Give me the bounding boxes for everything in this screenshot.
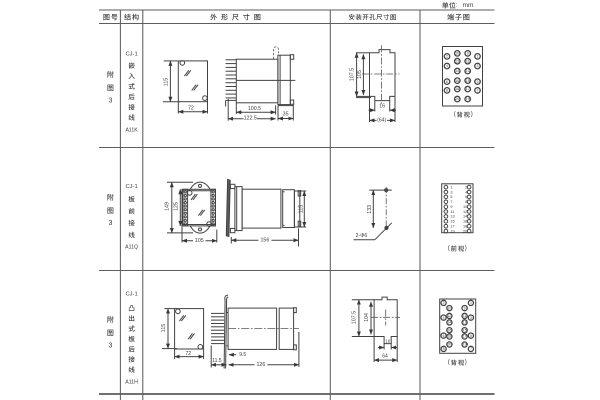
- svg-text:14: 14: [455, 69, 459, 73]
- svg-text:5: 5: [477, 80, 479, 84]
- svg-text:10: 10: [448, 306, 452, 310]
- svg-text:72: 72: [185, 351, 191, 357]
- svg-text:35: 35: [283, 112, 289, 118]
- svg-text:20: 20: [463, 229, 467, 233]
- svg-text:3: 3: [108, 220, 112, 227]
- svg-text:11.5: 11.5: [212, 358, 222, 364]
- svg-text:2: 2: [443, 301, 445, 305]
- svg-text:2: 2: [446, 55, 448, 59]
- svg-text:(: (: [448, 359, 450, 365]
- svg-text:105: 105: [195, 238, 204, 244]
- svg-text:5: 5: [450, 195, 452, 199]
- svg-text:CJ-1: CJ-1: [125, 292, 137, 298]
- svg-text:mm: mm: [463, 2, 474, 9]
- svg-text:(: (: [454, 111, 456, 117]
- svg-text:3: 3: [450, 190, 452, 194]
- svg-text:16: 16: [448, 328, 452, 332]
- svg-text:115: 115: [163, 78, 169, 86]
- svg-text:7: 7: [470, 347, 472, 351]
- svg-text:A11Q: A11Q: [125, 244, 138, 250]
- svg-text:16: 16: [385, 339, 390, 344]
- svg-text:4: 4: [446, 64, 448, 68]
- svg-text:12: 12: [448, 314, 452, 318]
- svg-text:13: 13: [466, 69, 470, 73]
- svg-text:17: 17: [450, 225, 454, 229]
- svg-text:9: 9: [464, 306, 466, 310]
- svg-text:100.5: 100.5: [248, 106, 261, 112]
- svg-text:5: 5: [470, 334, 472, 338]
- svg-text:1: 1: [470, 301, 472, 305]
- svg-text:107.5: 107.5: [349, 68, 355, 81]
- svg-text:(: (: [448, 245, 450, 251]
- svg-text:3: 3: [108, 342, 112, 349]
- svg-text:12: 12: [463, 210, 467, 214]
- svg-text:125: 125: [174, 202, 180, 211]
- svg-text:1: 1: [450, 185, 452, 189]
- svg-text:9: 9: [450, 205, 452, 209]
- svg-text:14: 14: [448, 321, 452, 325]
- svg-text:7: 7: [477, 89, 479, 93]
- svg-text:11: 11: [450, 210, 454, 214]
- svg-text:105: 105: [357, 70, 363, 79]
- svg-text:16: 16: [379, 104, 385, 110]
- svg-text:10: 10: [455, 52, 459, 56]
- svg-text:16: 16: [463, 220, 467, 224]
- svg-text:133: 133: [367, 205, 373, 214]
- svg-text:15: 15: [450, 220, 454, 224]
- svg-text:6: 6: [465, 195, 467, 199]
- svg-text:2-Φ6: 2-Φ6: [356, 233, 368, 239]
- svg-text:20: 20: [448, 343, 452, 347]
- svg-text:2: 2: [465, 185, 467, 189]
- svg-text:126: 126: [256, 362, 265, 368]
- svg-text:6: 6: [443, 334, 445, 338]
- svg-text:8: 8: [443, 347, 445, 351]
- svg-text:3: 3: [470, 316, 472, 320]
- svg-text:11: 11: [466, 59, 470, 63]
- svg-text:13: 13: [450, 215, 454, 219]
- svg-text:15: 15: [463, 328, 467, 332]
- svg-text:149: 149: [165, 202, 171, 211]
- svg-text:4: 4: [465, 190, 467, 194]
- svg-text:CJ-1: CJ-1: [125, 51, 137, 57]
- svg-text:9.5: 9.5: [239, 352, 246, 358]
- svg-text:107.5: 107.5: [352, 311, 358, 324]
- svg-text:72: 72: [188, 106, 194, 112]
- svg-text:17: 17: [463, 335, 467, 339]
- svg-text:A11K: A11K: [125, 128, 138, 134]
- svg-text:8: 8: [465, 200, 467, 204]
- svg-text:14: 14: [463, 215, 467, 219]
- svg-text:19: 19: [450, 229, 454, 233]
- svg-text:CJ-1: CJ-1: [125, 184, 137, 190]
- svg-text:20: 20: [455, 97, 459, 101]
- svg-text:13: 13: [463, 321, 467, 325]
- svg-text:104: 104: [364, 313, 370, 322]
- svg-text:7: 7: [450, 200, 452, 204]
- svg-text:10: 10: [463, 205, 467, 209]
- svg-text:19: 19: [463, 343, 467, 347]
- svg-text:(64): (64): [377, 117, 386, 123]
- svg-text::: :: [456, 2, 458, 9]
- svg-text:): ): [465, 245, 467, 251]
- svg-text:19: 19: [466, 97, 470, 101]
- svg-text:9: 9: [467, 52, 469, 56]
- svg-text:122.5: 122.5: [244, 116, 257, 122]
- svg-text:8: 8: [446, 89, 448, 93]
- svg-text:): ): [471, 111, 473, 117]
- svg-text:6: 6: [446, 80, 448, 84]
- svg-text:4: 4: [443, 316, 445, 320]
- svg-text:17: 17: [466, 87, 470, 91]
- svg-text:3: 3: [108, 97, 112, 104]
- svg-text:156: 156: [260, 237, 269, 243]
- svg-text:16: 16: [455, 79, 459, 83]
- svg-text:18: 18: [463, 225, 467, 229]
- svg-text:64: 64: [382, 354, 388, 360]
- svg-text:1: 1: [477, 55, 479, 59]
- svg-text:115: 115: [161, 324, 167, 332]
- svg-text:3: 3: [477, 64, 479, 68]
- svg-text:): ): [465, 359, 467, 365]
- svg-text:12: 12: [455, 59, 459, 63]
- svg-text:115: 115: [298, 205, 304, 213]
- svg-text:18: 18: [448, 335, 452, 339]
- svg-text:A11H: A11H: [125, 380, 138, 386]
- svg-text:15: 15: [466, 79, 470, 83]
- svg-text:11: 11: [463, 314, 467, 318]
- svg-text:18: 18: [455, 87, 459, 91]
